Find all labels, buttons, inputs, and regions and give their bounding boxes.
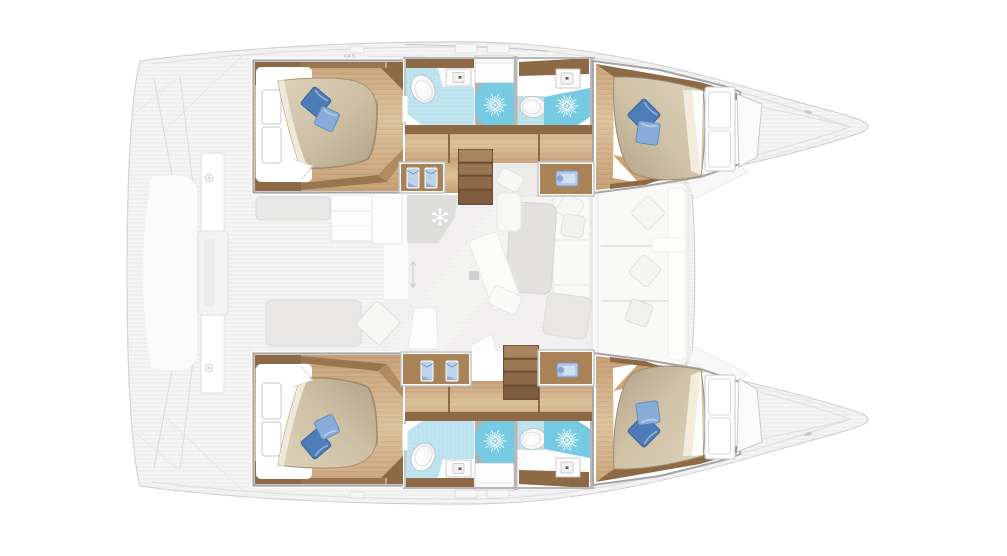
svg-text:6A 5: 6A 5 [344,54,355,60]
